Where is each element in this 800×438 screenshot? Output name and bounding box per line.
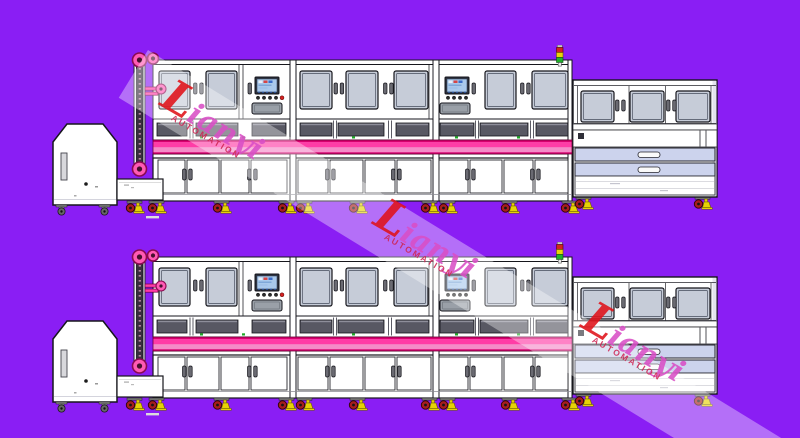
machine-window xyxy=(206,71,237,109)
feeder-mark xyxy=(74,195,77,197)
leveling-stem xyxy=(450,400,453,403)
panel-button xyxy=(446,96,449,99)
feeder-slot xyxy=(61,350,67,377)
connector-bar xyxy=(145,92,158,95)
tick-mark xyxy=(146,413,159,415)
door-handle xyxy=(254,169,258,180)
connector-bar xyxy=(145,289,158,292)
panel-button-red xyxy=(280,293,284,297)
machine-window xyxy=(394,268,428,306)
machine-window xyxy=(300,71,332,109)
screen-content xyxy=(259,282,272,284)
recess-panel-edge xyxy=(441,321,473,323)
caster-hub xyxy=(578,400,581,403)
leveling-base xyxy=(583,405,594,407)
screen-content xyxy=(449,282,462,284)
table-mark xyxy=(131,384,134,385)
leveling-foot xyxy=(287,403,295,409)
screen-content xyxy=(259,81,263,84)
pulley-core xyxy=(137,254,142,259)
door-handle xyxy=(531,366,535,377)
screen-content xyxy=(264,278,268,281)
machine-window xyxy=(346,268,378,306)
leveling-foot xyxy=(157,206,165,212)
cabinet-window xyxy=(581,91,614,122)
leveling-stem xyxy=(224,203,227,206)
leveling-base xyxy=(447,409,458,411)
leveling-base xyxy=(429,409,440,411)
leveling-foot xyxy=(448,403,456,409)
monitor-led xyxy=(456,92,458,94)
machine-line-drawing xyxy=(0,45,800,223)
machine-window xyxy=(394,71,428,109)
door-handle xyxy=(334,83,338,94)
panel-button-red xyxy=(280,96,284,100)
door-handle xyxy=(340,83,344,94)
caster-hub xyxy=(352,207,355,210)
caster-hub xyxy=(424,404,427,407)
tower-light-red xyxy=(557,245,564,250)
leveling-base xyxy=(509,212,520,214)
elevator-chain xyxy=(137,262,144,364)
recess-panel-edge xyxy=(197,321,237,323)
door-handle xyxy=(248,366,252,377)
monitor-led xyxy=(266,92,268,94)
machine-window xyxy=(206,268,237,306)
elevator-chain xyxy=(137,65,144,167)
base-mark xyxy=(660,387,668,388)
cabinet-window xyxy=(630,288,664,319)
caster-hub xyxy=(504,404,507,407)
cabinet-door xyxy=(397,160,431,193)
leveling-stem xyxy=(137,400,140,403)
door-handle xyxy=(340,280,344,291)
door-handle xyxy=(537,366,541,377)
leveling-base xyxy=(156,212,167,214)
monitor-led xyxy=(262,289,264,291)
cabinet-door xyxy=(365,357,395,390)
caster-mount xyxy=(99,205,110,207)
leveling-stem xyxy=(705,199,708,202)
table-mark xyxy=(131,187,134,188)
feeder-mark xyxy=(74,392,77,394)
leveling-stem xyxy=(572,203,575,206)
leveling-foot xyxy=(430,206,438,212)
feed-port-core xyxy=(159,87,162,90)
caster-hub xyxy=(697,400,700,403)
door-handle xyxy=(673,297,677,308)
caster-mount xyxy=(99,402,110,404)
recess-panel-edge xyxy=(441,124,473,126)
leveling-base xyxy=(286,212,297,214)
screen-content xyxy=(259,85,272,87)
panel-button xyxy=(458,96,461,99)
cabinet-door xyxy=(221,160,249,193)
door-handle xyxy=(521,280,525,291)
leveling-stem xyxy=(307,203,310,206)
panel-button xyxy=(256,293,259,296)
drawer-handle xyxy=(638,152,660,158)
monitor-led xyxy=(274,92,276,94)
door-handle xyxy=(332,169,336,180)
door-handle xyxy=(334,280,338,291)
recess-panel-edge xyxy=(481,124,527,126)
leveling-stem xyxy=(572,400,575,403)
leveling-base xyxy=(304,409,315,411)
cabinet-rail xyxy=(573,124,717,130)
caster-hub xyxy=(299,404,302,407)
feeder-slot xyxy=(61,153,67,180)
table-mark xyxy=(124,382,129,383)
leveling-foot xyxy=(358,206,366,212)
panel-button xyxy=(274,293,277,296)
caster-hub xyxy=(60,210,62,212)
tower-cap xyxy=(557,45,562,48)
caster-hub xyxy=(129,207,132,210)
panel-button xyxy=(452,293,455,296)
monitor-led xyxy=(464,289,466,291)
door-handle xyxy=(527,280,531,291)
base-mark xyxy=(610,183,620,184)
leveling-base xyxy=(702,405,713,407)
indicator-dot xyxy=(200,136,203,138)
leveling-stem xyxy=(289,400,292,403)
door-handle xyxy=(200,83,204,94)
leveling-base xyxy=(569,212,580,214)
monitor-led xyxy=(464,92,466,94)
leveling-stem xyxy=(137,203,140,206)
door-handle xyxy=(472,280,476,291)
drawer-handle xyxy=(638,349,660,355)
leveling-foot xyxy=(510,403,518,409)
door-handle xyxy=(472,366,476,377)
base-mark xyxy=(660,190,668,191)
door-handle xyxy=(531,169,535,180)
monitor-led xyxy=(258,92,260,94)
door-handle xyxy=(667,100,671,111)
indicator-dot xyxy=(455,333,458,335)
door-handle xyxy=(326,169,330,180)
door-handle xyxy=(527,83,531,94)
cabinet-door xyxy=(439,357,468,390)
door-handle xyxy=(466,366,470,377)
recess-panel-edge xyxy=(537,321,567,323)
door-handle xyxy=(667,297,671,308)
monitor-led xyxy=(456,289,458,291)
module-boundary xyxy=(290,60,296,201)
base-mark xyxy=(610,380,620,381)
leveling-stem xyxy=(307,400,310,403)
pulley-core xyxy=(151,253,155,257)
leveling-foot xyxy=(584,399,592,405)
screen-content xyxy=(259,278,263,281)
machines-top-rail xyxy=(153,60,572,65)
caster-hub xyxy=(129,404,132,407)
indicator-dot xyxy=(352,333,355,335)
door-handle xyxy=(673,100,677,111)
panel-button xyxy=(262,96,265,99)
cabinet-door xyxy=(221,357,249,390)
door-handle xyxy=(398,169,402,180)
cabinet-door xyxy=(504,357,533,390)
leveling-base xyxy=(509,409,520,411)
leveling-foot xyxy=(222,403,230,409)
door-handle xyxy=(326,366,330,377)
cabinet-window xyxy=(630,91,664,122)
cabinet-window xyxy=(676,288,710,319)
leveling-stem xyxy=(450,203,453,206)
leveling-foot xyxy=(305,206,313,212)
caster-mount xyxy=(56,205,67,207)
caster-hub xyxy=(151,404,154,407)
door-handle xyxy=(466,169,470,180)
screen-content xyxy=(449,284,458,286)
door-handle xyxy=(332,366,336,377)
module-boundary xyxy=(290,257,296,398)
shelf-marker xyxy=(578,330,584,336)
leveling-foot xyxy=(358,403,366,409)
cabinet-door xyxy=(439,160,468,193)
feeder-mark xyxy=(95,186,98,188)
drawer-handle xyxy=(638,167,660,173)
leveling-base xyxy=(156,409,167,411)
leveling-stem xyxy=(705,396,708,399)
leveling-stem xyxy=(432,400,435,403)
recess-panel-edge xyxy=(253,321,285,323)
machine-window xyxy=(300,268,332,306)
feeder-knob xyxy=(84,379,88,383)
feeder-mark xyxy=(95,383,98,385)
cabinet-base xyxy=(575,373,715,392)
caster-hub xyxy=(281,404,284,407)
door-handle xyxy=(254,366,258,377)
screen-content xyxy=(264,81,268,84)
leveling-foot xyxy=(584,202,592,208)
tower-light-red xyxy=(557,48,564,53)
cabinet-door xyxy=(298,160,328,193)
leveling-foot xyxy=(287,206,295,212)
indicator-dot xyxy=(352,136,355,138)
door-handle xyxy=(521,83,525,94)
cabinet-shelf-band xyxy=(573,327,717,344)
caster-hub xyxy=(578,203,581,206)
machine-window xyxy=(532,268,568,306)
door-handle xyxy=(183,169,187,180)
screen-content xyxy=(449,278,453,281)
tick-mark xyxy=(146,216,159,218)
cabinet-rail xyxy=(573,321,717,327)
leveling-stem xyxy=(512,203,515,206)
leveling-foot xyxy=(135,206,143,212)
leveling-base xyxy=(569,409,580,411)
panel-button xyxy=(458,293,461,296)
leveling-foot xyxy=(510,206,518,212)
leveling-stem xyxy=(360,203,363,206)
caster-hub xyxy=(151,207,154,210)
leveling-foot xyxy=(448,206,456,212)
cabinet-door xyxy=(397,357,431,390)
screen-content xyxy=(259,284,268,286)
door-handle xyxy=(248,83,252,94)
screen-content xyxy=(454,81,458,84)
door-handle xyxy=(248,280,252,291)
monitor-led xyxy=(448,92,450,94)
screen-content xyxy=(269,81,273,84)
screen-content xyxy=(454,278,458,281)
pulley-core xyxy=(137,57,142,62)
recess-panel-edge xyxy=(301,321,331,323)
door-handle xyxy=(622,297,626,308)
door-handle xyxy=(537,169,541,180)
door-handle xyxy=(472,169,476,180)
pulley-core xyxy=(151,56,155,60)
leveling-stem xyxy=(360,400,363,403)
panel-button xyxy=(464,96,467,99)
caster-hub xyxy=(442,404,445,407)
cabinet-door xyxy=(365,160,395,193)
door-handle xyxy=(183,366,187,377)
leveling-stem xyxy=(159,203,162,206)
cabinet-door xyxy=(298,357,328,390)
monitor-led xyxy=(460,289,462,291)
tower-light-yellow xyxy=(557,53,564,58)
machine-window xyxy=(485,71,516,109)
machine-window xyxy=(532,71,568,109)
leveling-foot xyxy=(703,399,711,405)
module-boundary xyxy=(433,60,439,201)
leveling-base xyxy=(304,212,315,214)
recess-panel-edge xyxy=(397,124,428,126)
cabinet-window xyxy=(581,288,614,319)
leveling-stem xyxy=(224,400,227,403)
screen-content xyxy=(459,81,463,84)
screen-content xyxy=(269,278,273,281)
leveling-foot xyxy=(430,403,438,409)
monitor-led xyxy=(270,92,272,94)
cabinet-base xyxy=(575,176,715,195)
screen-content xyxy=(459,278,463,281)
panel-button xyxy=(256,96,259,99)
leveling-foot xyxy=(305,403,313,409)
leveling-base xyxy=(221,409,232,411)
door-handle xyxy=(622,100,626,111)
caster-hub xyxy=(697,203,700,206)
panel-button xyxy=(446,293,449,296)
leveling-stem xyxy=(159,400,162,403)
door-handle xyxy=(248,169,252,180)
feeder-knob xyxy=(84,182,88,186)
recess-panel-edge xyxy=(481,321,527,323)
door-handle xyxy=(392,366,396,377)
leveling-foot xyxy=(703,202,711,208)
machines-top-rail xyxy=(153,257,572,262)
door-handle xyxy=(390,280,394,291)
monitor-led xyxy=(452,92,454,94)
leveling-base xyxy=(583,208,594,210)
monitor-led xyxy=(266,289,268,291)
monitor-led xyxy=(258,289,260,291)
panel-button xyxy=(268,293,271,296)
panel-button xyxy=(452,96,455,99)
caster-hub xyxy=(564,207,567,210)
door-handle xyxy=(194,280,198,291)
leveling-base xyxy=(134,212,145,214)
indicator-dot xyxy=(455,136,458,138)
vent-panel xyxy=(252,300,282,311)
indicator-dot xyxy=(517,333,520,335)
cabinet-shelf-band xyxy=(573,130,717,147)
table-mark xyxy=(124,185,129,186)
leveling-base xyxy=(134,409,145,411)
monitor-led xyxy=(274,289,276,291)
screen-content xyxy=(449,87,458,89)
screen-content xyxy=(449,81,453,84)
leveling-stem xyxy=(586,199,589,202)
pulley-core xyxy=(137,166,142,171)
leveling-stem xyxy=(289,203,292,206)
cad-drawing-canvas: Lianyi AUTOMATION Lianyi AUTOMATION Lian… xyxy=(0,0,800,438)
caster-hub xyxy=(216,207,219,210)
caster-hub xyxy=(504,207,507,210)
tower-pole xyxy=(558,260,561,264)
leveling-base xyxy=(447,212,458,214)
door-handle xyxy=(472,83,476,94)
indicator-dot xyxy=(200,333,203,335)
leveling-foot xyxy=(135,403,143,409)
door-handle xyxy=(189,169,193,180)
monitor-led xyxy=(270,289,272,291)
tower-light-green xyxy=(557,58,564,63)
recess-panel-edge xyxy=(197,124,237,126)
caster-hub xyxy=(299,207,302,210)
caster-hub xyxy=(216,404,219,407)
leveling-base xyxy=(221,212,232,214)
caster-hub xyxy=(103,407,105,409)
pulley-core xyxy=(137,363,142,368)
recess-panel-edge xyxy=(158,124,186,126)
transfer-table xyxy=(117,179,163,200)
caster-mount xyxy=(56,402,67,404)
door-handle xyxy=(189,366,193,377)
door-handle xyxy=(392,169,396,180)
monitor-led xyxy=(460,92,462,94)
door-handle xyxy=(384,280,388,291)
panel-button xyxy=(268,96,271,99)
door-handle xyxy=(200,280,204,291)
conveyor-bright-stripe xyxy=(153,142,572,147)
panel-button xyxy=(274,96,277,99)
leveling-base xyxy=(286,409,297,411)
drawer-handle xyxy=(638,364,660,370)
recess-panel-edge xyxy=(158,321,186,323)
conveyor-lower-rail xyxy=(153,351,572,355)
door-handle xyxy=(398,366,402,377)
tower-cap xyxy=(557,242,562,245)
indicator-dot xyxy=(517,136,520,138)
caster-hub xyxy=(564,404,567,407)
caster-hub xyxy=(103,210,105,212)
production-line-bottom xyxy=(0,242,800,420)
leveling-base xyxy=(702,208,713,210)
leveling-stem xyxy=(432,203,435,206)
indicator-dot xyxy=(242,333,245,335)
recess-panel-edge xyxy=(301,124,331,126)
recess-panel-edge xyxy=(253,124,285,126)
door-handle xyxy=(616,100,620,111)
recess-panel-edge xyxy=(339,124,383,126)
door-handle xyxy=(384,83,388,94)
recess-panel-edge xyxy=(537,124,567,126)
